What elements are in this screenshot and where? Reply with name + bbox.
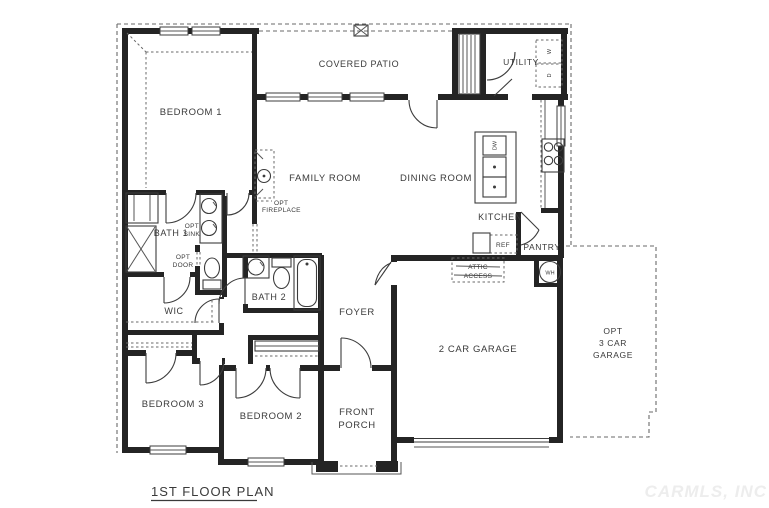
patio-window-1 xyxy=(266,93,300,101)
hvac-chase xyxy=(459,34,480,94)
annotations: 1ST FLOOR PLAN CARMLS, INC xyxy=(151,482,767,501)
opt-garage-label-2: 3 CAR xyxy=(599,338,627,348)
bedroom2-label: BEDROOM 2 xyxy=(240,411,302,422)
utility-label: UTILITY xyxy=(503,57,539,67)
bedroom3-label: BEDROOM 3 xyxy=(142,399,204,410)
opt-fireplace-label-1: OPT xyxy=(274,200,288,207)
opt-sink-label-1: OPT xyxy=(185,223,199,230)
ref-label: REF xyxy=(496,242,510,249)
patio-window-2 xyxy=(308,93,342,101)
bedroom1-window-1 xyxy=(160,27,188,35)
pantry-label: PANTRY xyxy=(523,242,560,252)
bedroom3-window xyxy=(150,446,186,454)
family-room-label: FAMILY ROOM xyxy=(289,173,361,184)
refrigerator xyxy=(473,233,517,253)
front-porch-label-1: FRONT xyxy=(339,407,375,418)
front-door xyxy=(341,338,371,368)
bath1-door xyxy=(166,193,196,223)
patio-door xyxy=(409,100,437,128)
opt-door-label-2: DOOR xyxy=(173,262,194,269)
patio-window-3 xyxy=(350,93,384,101)
front-porch-label-2: PORCH xyxy=(338,420,375,431)
opt-door-label-1: OPT xyxy=(176,254,190,261)
attic-access-label-1: ATTIC xyxy=(468,264,488,271)
watermark: CARMLS, INC xyxy=(645,482,767,501)
cased-opening xyxy=(253,224,257,252)
kitchen-label: KITCHEN xyxy=(478,212,522,222)
option-labels: OPT FIREPLACE OPT SINK OPT DOOR ATTIC AC… xyxy=(173,48,555,280)
bedroom3-closet-door xyxy=(146,353,176,383)
floor-plan-drawing: BEDROOM 1 COVERED PATIO UTILITY FAMILY R… xyxy=(0,0,769,508)
dryer-label: D xyxy=(547,73,553,77)
bedroom1-label: BEDROOM 1 xyxy=(160,107,222,118)
bath2-tub xyxy=(294,256,320,310)
hall-door xyxy=(227,193,249,215)
garage-entry-door xyxy=(375,262,391,285)
dw-label: DW xyxy=(493,140,499,150)
bedroom2-door-right xyxy=(270,368,300,398)
covered-patio-label: COVERED PATIO xyxy=(319,59,399,69)
wic-door-side xyxy=(195,299,219,323)
bath2-label: BATH 2 xyxy=(252,292,286,302)
door-openings xyxy=(146,93,549,443)
floor-plan-page: BEDROOM 1 COVERED PATIO UTILITY FAMILY R… xyxy=(0,0,769,508)
plan-title: 1ST FLOOR PLAN xyxy=(151,484,275,499)
attic-access-label-2: ACCESS xyxy=(464,273,493,280)
pantry-door xyxy=(521,212,539,245)
bedroom3-closet-shelf xyxy=(126,343,192,347)
bath1-toilet xyxy=(203,258,221,289)
bedroom2-closet-builtin xyxy=(255,341,319,356)
fireplace xyxy=(255,150,274,198)
bath2-toilet xyxy=(272,258,291,289)
roof-outline-dashed xyxy=(117,24,656,453)
garage-label: 2 CAR GARAGE xyxy=(439,344,517,355)
bath1-vanity xyxy=(200,194,222,243)
opt-garage-label-3: GARAGE xyxy=(593,350,633,360)
washer-label: W xyxy=(547,48,553,54)
opt-garage-label-1: OPT xyxy=(603,326,622,336)
bedroom1-window-2 xyxy=(192,27,220,35)
wh-label: WH xyxy=(545,271,554,277)
bedroom2-door-left xyxy=(236,368,266,398)
opt-door-dashes xyxy=(197,252,200,266)
dining-room-label: DINING ROOM xyxy=(400,173,472,184)
opt-fireplace-label-2: FIREPLACE xyxy=(262,207,301,214)
linen-closet xyxy=(126,193,158,223)
wic-door-top xyxy=(164,277,190,303)
opt-sink-label-2: SINK xyxy=(184,231,201,238)
shower xyxy=(126,226,156,272)
bedroom2-window xyxy=(248,458,284,466)
wic-label: WIC xyxy=(164,306,183,316)
foyer-label: FOYER xyxy=(339,307,375,318)
